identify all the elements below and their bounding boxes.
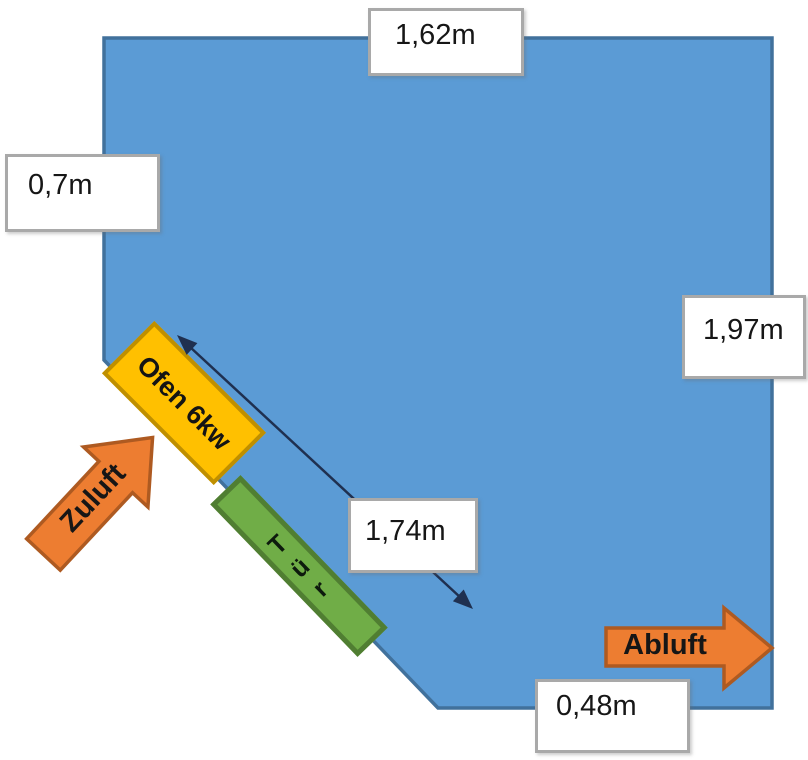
dimension-label-top: 1,62m [368,8,524,76]
dimension-arrowhead-down-icon [453,590,473,610]
dimension-label-right: 1,97m [682,295,806,379]
door-letter-r: r [309,577,333,602]
dimension-label-left: 0,7m [5,154,160,232]
door-letter-t: T [264,530,292,559]
dimension-label-diagonal: 1,74m [348,498,478,573]
floor-plan-canvas: Ofen 6kw T ü r 1,62m 0,7m 1,97m 1,74m 0,… [0,0,808,760]
exhaust-air-label: Abluft [606,626,724,664]
